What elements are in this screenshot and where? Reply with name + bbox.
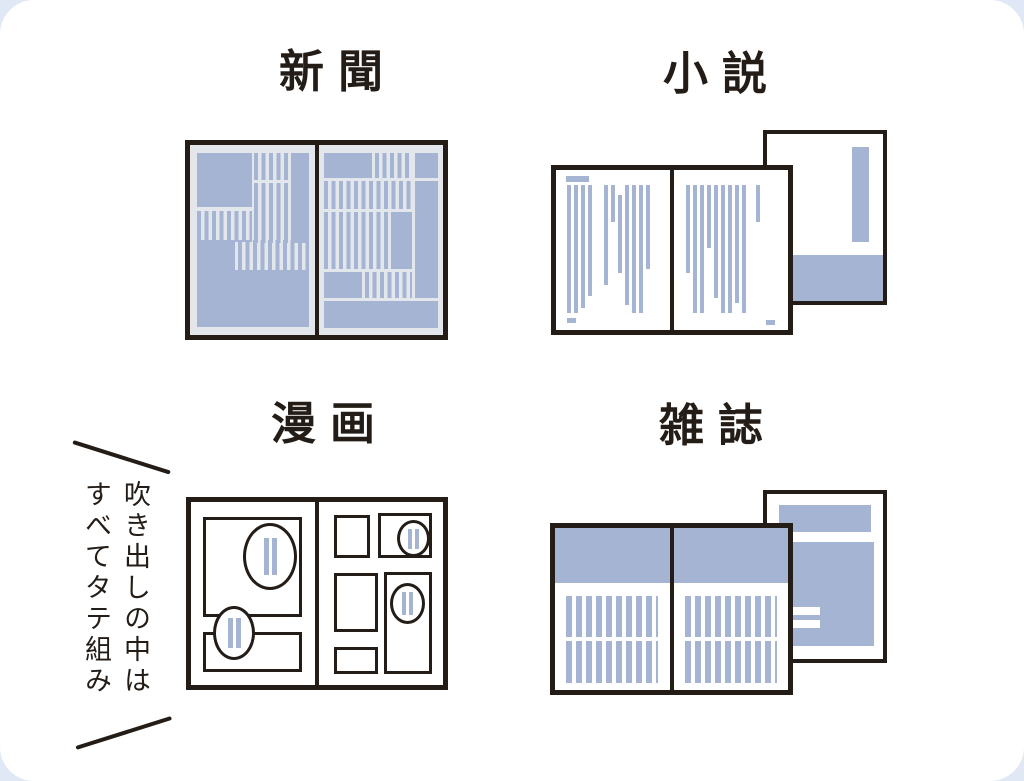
magazine-left-page [555, 528, 670, 690]
manga-spread-illustration [186, 497, 448, 690]
news-article-block [197, 270, 309, 327]
handwritten-note: 吹き出しの中は すべてタテ組み [58, 428, 188, 764]
news-article-block [291, 153, 309, 243]
magazine-right-page [674, 528, 789, 690]
news-article-block [197, 153, 252, 207]
news-article-block [324, 272, 362, 298]
newspaper-label: 新聞 [200, 46, 462, 98]
novel-left-page [556, 170, 670, 330]
note-text: 吹き出しの中は すべてタテ組み [76, 480, 154, 732]
news-text-columns [375, 153, 412, 178]
news-text-columns [324, 181, 412, 209]
manga-label: 漫画 [192, 398, 454, 450]
speech-bubble [213, 606, 255, 660]
diagram-card: 新聞 小説 漫画 雑誌 [0, 0, 1024, 781]
magazine-photo-band [555, 528, 670, 583]
news-text-columns [254, 153, 288, 180]
magazine-text-columns [685, 641, 777, 683]
news-text-columns [238, 240, 309, 272]
news-article-block [197, 240, 235, 272]
novel-spread-illustration [551, 165, 793, 335]
magazine-photo-band [674, 528, 789, 583]
novel-cover-title-bar [852, 147, 869, 242]
newspaper-right-page [319, 145, 444, 335]
manga-right-page [319, 502, 443, 685]
news-article-block [391, 212, 412, 269]
news-article-block [415, 181, 438, 298]
speech-bubble [243, 523, 297, 590]
manga-panel [334, 515, 370, 558]
page-number-bar [567, 318, 576, 323]
manga-panel [334, 647, 378, 674]
note-line: すべてタテ組み [76, 480, 115, 732]
running-head-bar [566, 176, 589, 182]
magazine-cover-photo-block [779, 542, 874, 646]
magazine-label: 雑誌 [566, 400, 856, 452]
news-text-columns [254, 183, 288, 243]
news-text-columns [197, 211, 252, 242]
note-line: 吹き出しの中は [115, 480, 154, 732]
magazine-text-columns [566, 641, 658, 683]
news-article-block [415, 153, 438, 178]
speech-bubble [390, 583, 425, 624]
novel-right-page [674, 170, 788, 330]
manga-left-page [191, 502, 315, 685]
newspaper-spread-illustration [185, 140, 448, 340]
news-text-columns [365, 272, 412, 298]
manga-panel [334, 573, 378, 632]
speech-bubble [397, 520, 430, 557]
note-top-slash [72, 440, 170, 474]
page-number-bar [766, 320, 775, 325]
magazine-text-columns [566, 596, 658, 637]
news-article-block [324, 301, 438, 328]
news-article-block [324, 153, 372, 178]
newspaper-left-page [190, 145, 315, 335]
magazine-spread-illustration [550, 523, 793, 695]
news-text-columns [324, 212, 388, 269]
magazine-text-columns [685, 596, 777, 637]
novel-label: 小説 [570, 48, 860, 100]
